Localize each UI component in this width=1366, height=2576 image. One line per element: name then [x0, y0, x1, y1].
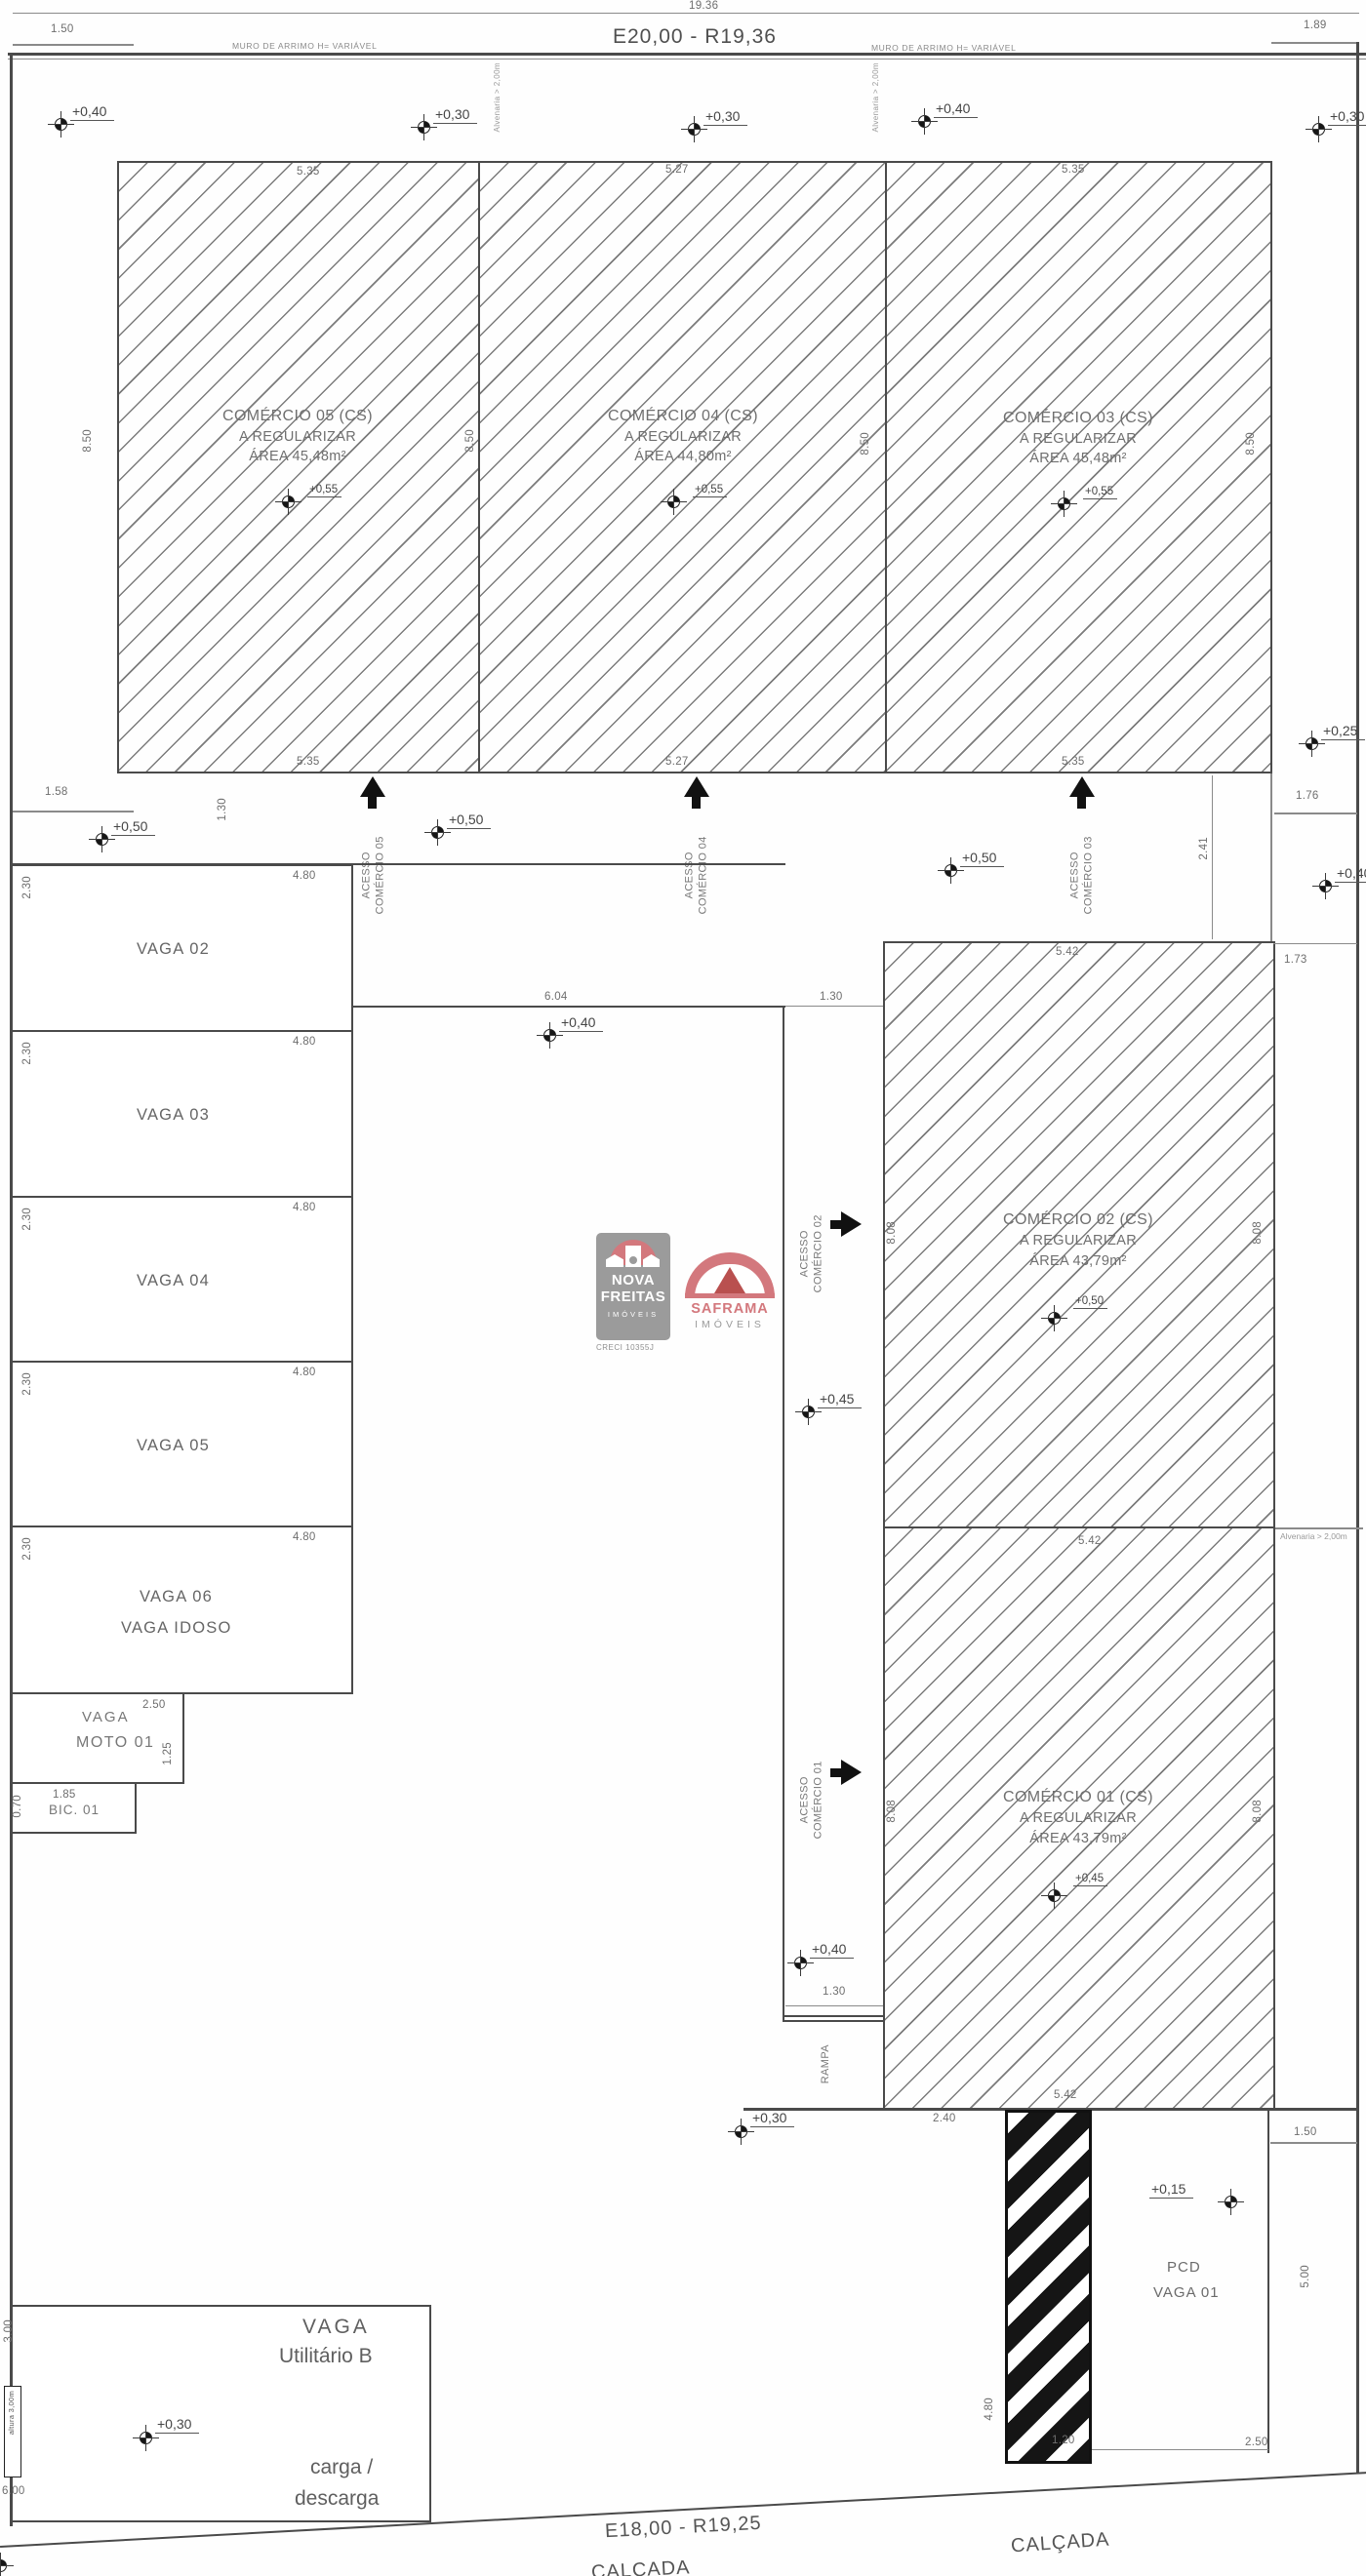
level-label: +0,25	[1321, 723, 1365, 740]
level-label: +0,30	[750, 2110, 794, 2127]
access-arrow-stem	[368, 797, 377, 809]
dim: 2.30	[21, 876, 33, 899]
dim-line	[1092, 2449, 1268, 2450]
level-label: +0,40	[810, 1941, 854, 1959]
level-marker	[1306, 737, 1318, 750]
unit-area: ÁREA 44,80m²	[585, 449, 781, 464]
floor-plan: 19.36 1.50 1.89 E20,00 - R19,36 MURO DE …	[0, 0, 1366, 2576]
dim: 5.35	[1062, 756, 1085, 768]
level-label: +0,55	[307, 484, 341, 497]
retaining-wall-label-right: MURO DE ARRIMO H= VARIÁVEL	[871, 43, 1016, 53]
carga-label-1: carga /	[310, 2456, 373, 2479]
dim: 1.58	[45, 786, 68, 798]
unit-comercio-04	[478, 161, 887, 773]
access-label-comercio-01: ACESSOCOMÉRCIO 01	[798, 1741, 826, 1858]
dim: 4.80	[293, 1531, 316, 1543]
level-marker	[794, 1957, 807, 1969]
dim-line	[1274, 812, 1357, 814]
access-label-comercio-02: ACESSOCOMÉRCIO 02	[798, 1195, 826, 1312]
level-marker	[1312, 123, 1325, 136]
alvenaria-label-right: Alvenaria > 2,00m	[1280, 1531, 1347, 1541]
moto-label-1: VAGA	[82, 1709, 130, 1725]
access-arrow-comercio-04	[684, 776, 709, 797]
dim-top-right: 1.89	[1304, 20, 1327, 31]
level-label: +0,50	[447, 812, 491, 829]
vaga-06	[11, 1526, 353, 1694]
level-label: +0,30	[155, 2416, 199, 2434]
dim: 5.42	[1056, 946, 1079, 958]
level-marker	[418, 121, 430, 134]
calcada-label-right: CALÇADA	[1010, 2528, 1110, 2557]
access-arrow-comercio-03	[1069, 776, 1095, 797]
dim-total: 19.36	[689, 0, 718, 12]
dim: 1.85	[53, 1789, 76, 1801]
dim: 2.40	[933, 2113, 956, 2124]
ext-line	[1273, 943, 1357, 944]
dim: 2.30	[21, 1537, 33, 1561]
dim: 2.50	[142, 1699, 166, 1711]
access-arrow-stem	[830, 1768, 842, 1777]
nova-logo-text-3: IMÓVEIS	[596, 1310, 670, 1319]
dim: 5.27	[665, 756, 689, 768]
dim: 1.30	[823, 1986, 846, 1998]
wall-top-inner	[8, 59, 1366, 59]
dim: 4.80	[293, 1036, 316, 1048]
level-label: +0,40	[934, 100, 978, 118]
dim: 8.50	[464, 429, 476, 453]
access-label-comercio-04: ACESSOCOMÉRCIO 04	[683, 816, 711, 933]
dim: 8.08	[1252, 1800, 1264, 1823]
dim: 5.35	[297, 166, 320, 178]
util-label-1: VAGA	[302, 2316, 370, 2339]
dim: 2.50	[1245, 2437, 1268, 2448]
level-marker	[802, 1406, 815, 1418]
dim: 3.00	[3, 2319, 15, 2343]
wall-mid	[351, 1006, 785, 1008]
unit-area: ÁREA 43,79m²	[981, 1253, 1176, 1269]
nova-logo-text-2: FREITAS	[596, 1288, 670, 1305]
unit-title: COMÉRCIO 04 (CS)	[585, 408, 781, 425]
level-label: +0,30	[703, 108, 747, 126]
ramp-edge-1	[783, 2015, 883, 2017]
level-marker	[0, 2559, 7, 2572]
dim: 1.50	[1294, 2126, 1317, 2138]
level-marker	[1048, 1312, 1061, 1325]
wall-corridor-left	[783, 1006, 784, 2022]
unit-comercio-03	[885, 161, 1272, 773]
ext-line	[1270, 773, 1272, 941]
util-label-2: Utilitário B	[279, 2345, 373, 2368]
dim: 8.50	[1245, 432, 1257, 456]
altura-label: altura 3,00m	[7, 2391, 16, 2435]
level-label: +0,45	[1073, 1873, 1107, 1886]
level-marker	[944, 864, 957, 877]
street-title-top: E20,00 - R19,36	[613, 25, 777, 49]
dim: 5.42	[1078, 1535, 1102, 1547]
unit-area: ÁREA 43,79m²	[981, 1831, 1176, 1846]
access-arrow-comercio-05	[360, 776, 385, 797]
level-marker	[667, 495, 680, 508]
retaining-wall-label-left: MURO DE ARRIMO H= VARIÁVEL	[232, 41, 377, 51]
dim: 5.35	[1062, 164, 1085, 176]
dim: 4.80	[984, 2398, 995, 2421]
level-marker	[1225, 2196, 1237, 2208]
unit-title: COMÉRCIO 03 (CS)	[981, 410, 1176, 427]
dim-line	[1270, 2142, 1357, 2144]
level-marker	[1319, 880, 1332, 892]
street-title-bottom: E18,00 - R19,25	[605, 2513, 763, 2543]
vaga-label: VAGA 05	[137, 1437, 210, 1455]
access-arrow-stem	[1077, 797, 1086, 809]
unit-area: ÁREA 45,48m²	[981, 451, 1176, 466]
level-marker	[543, 1029, 556, 1042]
level-label: +0,15	[1149, 2181, 1193, 2199]
dim: 1.20	[1052, 2435, 1075, 2446]
calcada-label-left: CALÇADA	[590, 2556, 691, 2576]
dim-line	[785, 1006, 883, 1007]
level-marker	[918, 115, 931, 128]
unit-title: COMÉRCIO 01 (CS)	[981, 1789, 1176, 1806]
access-arrow-stem	[692, 797, 701, 809]
dim: 5.42	[1054, 2089, 1077, 2101]
level-label: +0,30	[1328, 108, 1366, 126]
pcd-hatched-strip	[1005, 2110, 1092, 2464]
dim: 1.73	[1284, 954, 1307, 966]
dim: 2.30	[21, 1372, 33, 1396]
alvenaria-label-1: Alvenaria > 2,00m	[493, 62, 502, 133]
level-marker	[431, 826, 444, 839]
vaga-label: VAGA 03	[137, 1106, 210, 1125]
level-label: +0,50	[111, 818, 155, 836]
saframa-arch-base	[685, 1293, 775, 1298]
ramp-edge-2	[783, 2020, 883, 2022]
level-marker	[735, 2125, 747, 2138]
dim-top-left: 1.50	[51, 23, 74, 35]
nova-creci-label: CRECI 10355J	[596, 1343, 654, 1352]
level-marker	[140, 2432, 152, 2444]
wall-pcd-right	[1267, 2110, 1269, 2453]
ext-line	[1275, 1527, 1363, 1529]
clover-icon	[629, 1256, 637, 1264]
vaga-idoso-label: VAGA IDOSO	[121, 1619, 231, 1638]
dim: 5.35	[297, 756, 320, 768]
vaga-label: VAGA 06	[140, 1588, 213, 1606]
level-label: +0,40	[1335, 865, 1366, 883]
dim-line-total	[13, 13, 1359, 14]
ramp-label: RAMPA	[819, 2025, 832, 2103]
dim-line-right	[1271, 42, 1359, 44]
dim: 4.80	[293, 870, 316, 882]
level-marker	[1048, 1889, 1061, 1902]
unit-subtitle: A REGULARIZAR	[585, 429, 781, 445]
saframa-logo-text: SAFRAMA	[681, 1301, 779, 1317]
level-marker	[55, 118, 67, 131]
bic-label: BIC. 01	[49, 1803, 100, 1817]
dim: 0.70	[12, 1795, 23, 1818]
dim: 1.30	[217, 798, 228, 821]
unit-title: COMÉRCIO 05 (CS)	[200, 408, 395, 425]
dim: 4.80	[293, 1202, 316, 1213]
dim: 2.30	[21, 1042, 33, 1065]
dim: 8.50	[82, 429, 94, 453]
unit-area: ÁREA 45,48m²	[200, 449, 395, 464]
dim-line	[13, 811, 134, 812]
vaga-label: VAGA 02	[137, 940, 210, 959]
dim-line-left	[13, 44, 134, 46]
level-label: +0,45	[818, 1391, 862, 1408]
dim: 8.08	[886, 1221, 898, 1245]
nova-logo-text-1: NOVA	[596, 1272, 670, 1288]
level-label: +0,55	[1083, 486, 1117, 499]
pcd-label-1: PCD	[1167, 2259, 1201, 2276]
saframa-logo: SAFRAMA IMÓVEIS	[681, 1252, 779, 1335]
dim: 6.04	[544, 991, 568, 1003]
unit-subtitle: A REGULARIZAR	[981, 1810, 1176, 1826]
level-label: +0,40	[70, 103, 114, 121]
dim: 8.08	[1252, 1221, 1264, 1245]
dim: 5.27	[665, 164, 689, 176]
dim: 5.00	[1300, 2265, 1311, 2288]
moto-label-2: MOTO 01	[76, 1734, 154, 1752]
level-label: +0,50	[960, 850, 1004, 867]
dim: 2.41	[1198, 837, 1210, 860]
level-label: +0,50	[1073, 1295, 1107, 1309]
dim: 1.25	[162, 1742, 174, 1765]
access-arrow-comercio-02	[841, 1211, 862, 1237]
alvenaria-label-2: Alvenaria > 2,00m	[871, 62, 880, 133]
dim: 2.30	[21, 1208, 33, 1231]
level-marker	[282, 495, 295, 508]
dim: 1.76	[1296, 790, 1319, 802]
level-marker	[96, 833, 108, 846]
access-arrow-comercio-01	[841, 1760, 862, 1785]
dim: 8.08	[886, 1800, 898, 1823]
access-label-comercio-05: ACESSOCOMÉRCIO 05	[360, 816, 388, 933]
wall-top-outer	[8, 53, 1366, 56]
unit-subtitle: A REGULARIZAR	[200, 429, 395, 445]
unit-subtitle: A REGULARIZAR	[981, 431, 1176, 447]
level-label: +0,55	[693, 484, 727, 497]
level-label: +0,40	[559, 1014, 603, 1032]
nova-freitas-logo: NOVA FREITAS IMÓVEIS	[596, 1233, 670, 1340]
carga-label-2: descarga	[295, 2487, 379, 2511]
access-arrow-stem	[830, 1220, 842, 1229]
ext-line	[1212, 775, 1213, 939]
dim: 1.30	[820, 991, 843, 1003]
vaga-label: VAGA 04	[137, 1272, 210, 1290]
access-label-comercio-03: ACESSOCOMÉRCIO 03	[1068, 816, 1097, 933]
level-marker	[688, 123, 701, 136]
level-label: +0,30	[433, 106, 477, 124]
dim-line	[785, 2005, 883, 2006]
unit-title: COMÉRCIO 02 (CS)	[981, 1211, 1176, 1229]
unit-subtitle: A REGULARIZAR	[981, 1233, 1176, 1248]
level-marker	[1058, 497, 1070, 510]
pcd-label-2: VAGA 01	[1153, 2284, 1220, 2301]
dim: 8.50	[860, 432, 871, 456]
dim: 6.00	[2, 2485, 25, 2497]
dim: 4.80	[293, 1367, 316, 1378]
saframa-logo-sub: IMÓVEIS	[681, 1319, 779, 1330]
unit-comercio-05	[117, 161, 480, 773]
